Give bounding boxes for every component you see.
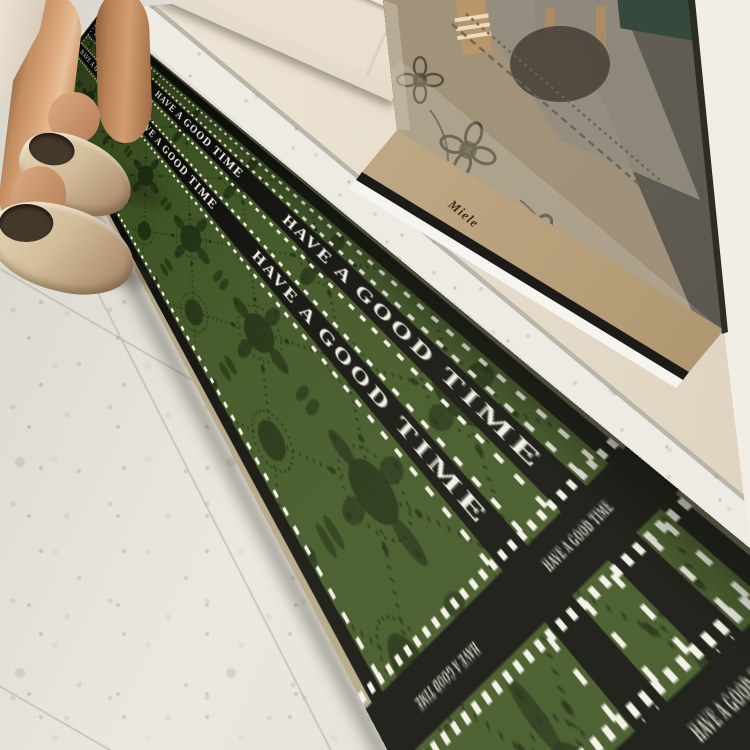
slipper-opening <box>0 204 53 242</box>
person-back-leg <box>94 0 153 144</box>
person <box>0 0 750 750</box>
scene: HAVE A GOOD TIME HAVE A GOOD TIME HAVE A… <box>0 0 750 750</box>
slipper-opening <box>26 129 77 169</box>
